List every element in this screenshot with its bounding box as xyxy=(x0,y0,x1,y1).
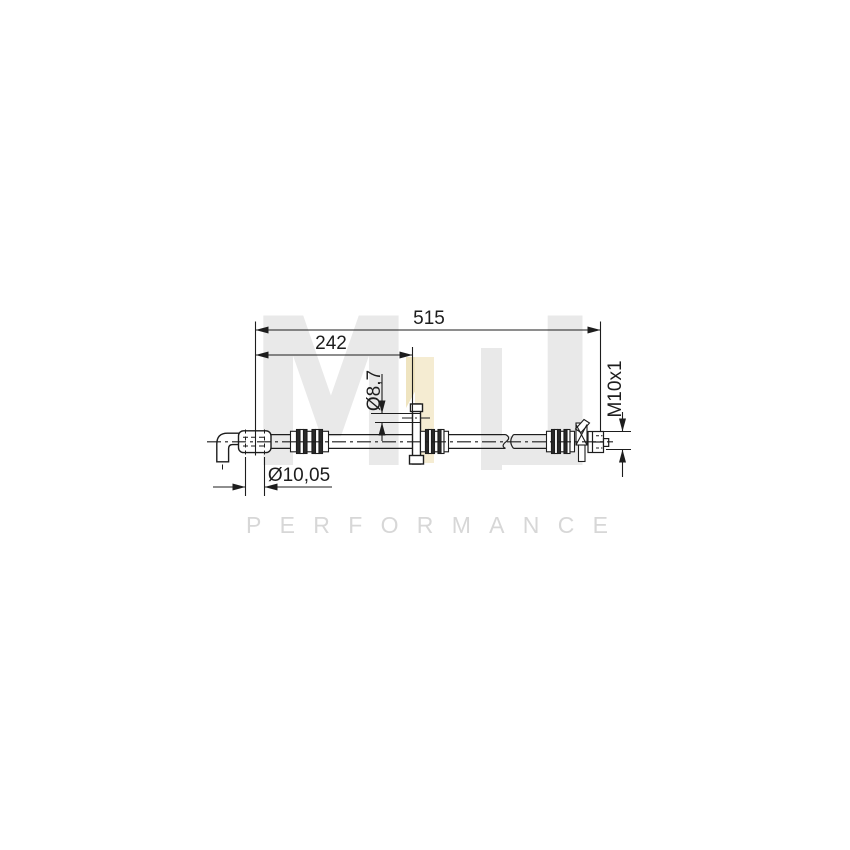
dimension-515-label: 515 xyxy=(413,308,445,329)
arrow-up-icon xyxy=(619,450,626,463)
dimension-10-05-label: Ø10,05 xyxy=(268,465,330,486)
technical-drawing-canvas: M L PERFORMANCE xyxy=(0,0,850,850)
elbow-fitting xyxy=(217,433,239,462)
dimension-m10x1-label: M10x1 xyxy=(605,360,626,417)
dimension-m10x1: M10x1 xyxy=(601,360,632,477)
dimension-8-7-label: Ø8,7 xyxy=(364,370,385,411)
arrow-right-icon xyxy=(233,484,246,491)
thread-pin xyxy=(604,439,609,447)
svg-text:L: L xyxy=(482,276,600,514)
dimension-242-label: 242 xyxy=(315,333,347,354)
watermark-letter-l: L xyxy=(482,276,600,514)
arrow-down-icon xyxy=(619,419,626,432)
product-image: M L PERFORMANCE xyxy=(0,0,850,850)
watermark-subtitle: PERFORMANCE xyxy=(246,512,608,538)
